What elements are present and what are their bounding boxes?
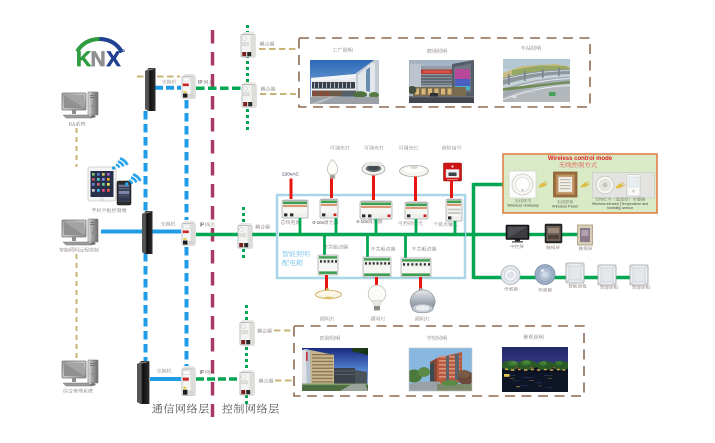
- svg-text:Wireless Gateway: Wireless Gateway: [507, 202, 538, 207]
- svg-text:K: K: [76, 48, 91, 71]
- svg-text:humidity) sensor: humidity) sensor: [607, 206, 634, 210]
- svg-text:N: N: [91, 48, 106, 71]
- svg-text:IP: IP: [200, 223, 205, 229]
- svg-text:0-10v: 0-10v: [313, 220, 325, 225]
- svg-text:IP: IP: [198, 80, 203, 86]
- svg-text:X: X: [107, 48, 121, 71]
- svg-text:IP: IP: [200, 370, 205, 376]
- svg-text:Wireless control mode: Wireless control mode: [548, 156, 613, 162]
- svg-text:Wireless Panel: Wireless Panel: [552, 203, 578, 208]
- svg-text:220vAC: 220vAC: [282, 171, 300, 177]
- svg-text:0-10v: 0-10v: [357, 219, 369, 224]
